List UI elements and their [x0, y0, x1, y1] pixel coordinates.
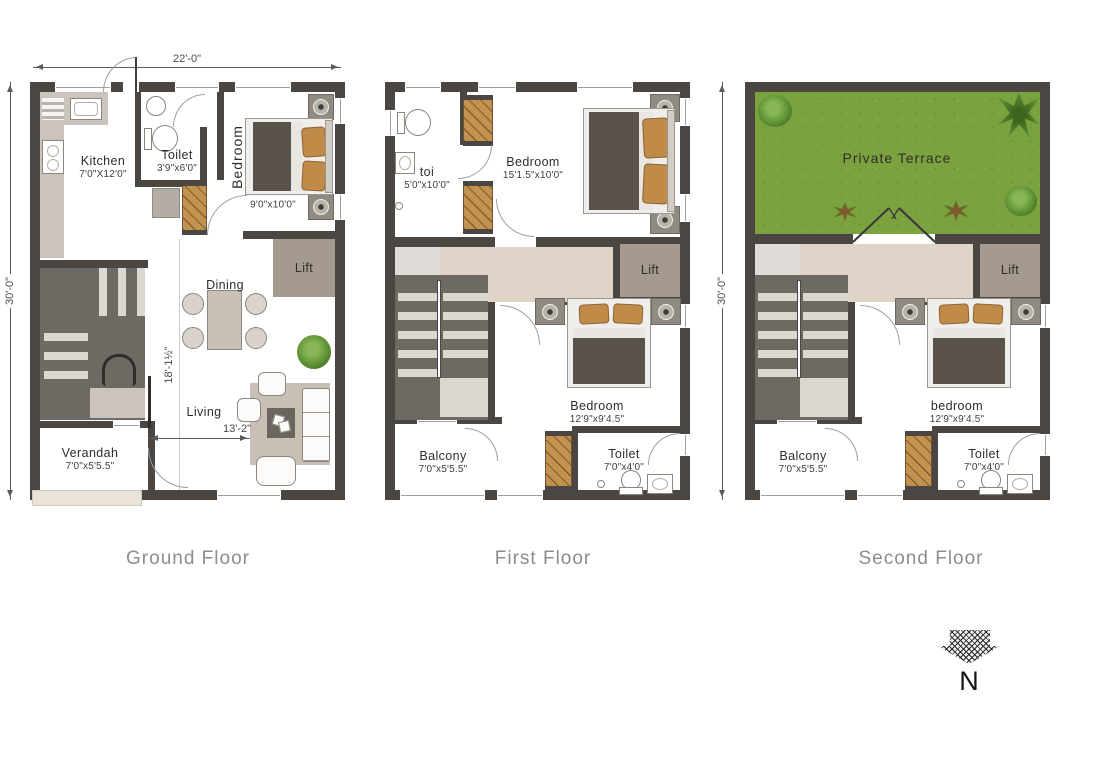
outer-wall-left [30, 82, 40, 500]
balcony-label: Balcony 7'0"x5'5.5" [419, 449, 468, 475]
basin-icon [1007, 474, 1033, 494]
dining-label: Dining [206, 278, 244, 292]
wc-bowl-icon [405, 109, 431, 136]
entry-door-leaf [135, 57, 137, 92]
bed-duvet [573, 338, 645, 384]
bed-sheet [573, 328, 645, 338]
window [478, 82, 516, 92]
bedroom-label: Bedroom [229, 125, 245, 189]
pillow-icon [301, 126, 327, 158]
lamp-icon [313, 199, 329, 215]
armchair-icon [258, 372, 286, 396]
bedroom-label: bedroom 12'9"x9'4.5" [930, 399, 984, 425]
headboard [667, 110, 675, 212]
wardrobe-icon [463, 99, 493, 142]
lift-label: Lift [641, 263, 659, 277]
stair-landing [440, 378, 488, 417]
outer-wall-right [335, 82, 345, 500]
dining-table-icon [207, 290, 242, 350]
bed-duvet [933, 338, 1005, 384]
balcony-railing [760, 490, 845, 500]
stair-treads [758, 282, 798, 377]
window [577, 82, 633, 92]
pillow-icon [642, 163, 670, 204]
second-floor-plan: Private Terrace Lift [745, 82, 1050, 500]
terrace-wall [755, 234, 853, 244]
terrace-label: Private Terrace [843, 150, 952, 166]
stair-railing [437, 280, 441, 378]
wc-tank-icon [144, 128, 152, 150]
toilet-wall-right [200, 127, 207, 187]
desk-chair-icon [102, 354, 136, 386]
toi-door-arc [458, 145, 492, 179]
bedroom2-label: Bedroom 12'9"x9'4.5" [570, 399, 624, 425]
terrace-double-door-icon [845, 198, 943, 244]
living-label: Living [186, 405, 221, 419]
outer-wall-left [745, 82, 755, 500]
wardrobe-icon [463, 185, 493, 230]
window [680, 194, 690, 222]
kitchen-label: Kitchen 7'0"X12'0" [79, 154, 126, 180]
wardrobe-icon [545, 435, 572, 487]
plant-icon [758, 95, 792, 127]
nightstand [895, 298, 925, 325]
ground-floor-title: Ground Floor [126, 548, 250, 570]
toi-label: toi 5'0"x10'0" [404, 165, 450, 191]
pillow-icon [972, 303, 1003, 325]
window [217, 490, 281, 500]
bedroom-door-arc [207, 195, 247, 235]
stair-treads [803, 282, 848, 363]
north-label: N [959, 666, 979, 697]
pillow-icon [938, 303, 969, 325]
lamp-icon [902, 304, 918, 320]
pillow-icon [578, 303, 609, 325]
dimension-height-second: 30'-0" [716, 274, 728, 308]
lamp-icon [313, 99, 329, 115]
lift-label: Lift [1001, 263, 1019, 277]
window [857, 490, 903, 500]
balcony-door-arc [825, 428, 858, 461]
verandah-label: Verandah 7'0"x5'5.5" [62, 446, 119, 472]
dimension-inner-vertical: 18'-1½" [163, 343, 175, 386]
coffee-table-icon [267, 408, 295, 438]
window [1040, 434, 1050, 456]
lift-label: Lift [295, 261, 313, 275]
toilet-wall-left [572, 426, 578, 497]
lamp-icon [658, 304, 674, 320]
nightstand [651, 298, 681, 325]
dining-chair-icon [182, 327, 204, 349]
window [680, 434, 690, 456]
window [405, 82, 441, 92]
bedroom1-label: Bedroom 15'1.5"x10'0" [503, 155, 563, 181]
toilet-wall-top [932, 426, 1040, 433]
outer-wall-left [385, 82, 395, 500]
dining-chair-icon [245, 327, 267, 349]
bedroom-wall-left [217, 92, 224, 180]
desk [90, 388, 145, 418]
entry-step [32, 490, 142, 506]
armchair-icon [237, 398, 261, 422]
bedroom-size-label: 9'0"x10'0" [250, 200, 296, 211]
bedroom-door-arc [860, 305, 900, 345]
bed-duvet [589, 112, 639, 210]
dimension-height-ground: 30'-0" [4, 274, 16, 308]
toilet-wall-left [932, 426, 938, 497]
toilet-door-arc [1008, 433, 1040, 465]
balcony-door-arc [465, 428, 498, 461]
wc-tank-icon [979, 487, 1003, 495]
wc-tank-icon [397, 112, 405, 134]
drain-icon [395, 202, 403, 210]
dimension-width-ground: 22'-0" [170, 53, 204, 65]
console [148, 376, 151, 428]
first-floor-title: First Floor [495, 548, 592, 570]
dimension-line-width-ground [33, 67, 341, 68]
nightstand [535, 298, 565, 325]
bedroom-wall-bottom [243, 231, 335, 239]
lift-wall-left [613, 237, 620, 304]
stair-treads [44, 322, 88, 384]
drain-icon [597, 480, 605, 488]
bedroom1-door-arc [496, 199, 534, 237]
dining-chair-icon [245, 293, 267, 315]
drain-icon [957, 480, 965, 488]
dish-rack-icon [42, 98, 64, 120]
terrace-wall [935, 234, 1040, 244]
stair-treads [398, 282, 438, 377]
basin-icon [647, 474, 673, 494]
wardrobe-icon [182, 185, 207, 231]
toilet-wall-left [135, 92, 141, 187]
north-arrow-icon [938, 630, 1000, 664]
plant-icon [297, 335, 331, 369]
pillow-icon [642, 117, 670, 158]
sofa-icon [302, 388, 330, 462]
toilet-label: Toilet 3'9"x6'0" [157, 148, 197, 174]
wardrobe-icon [905, 435, 932, 487]
window [113, 421, 140, 428]
nightstand [308, 94, 334, 120]
basin-icon [146, 96, 166, 116]
first-floor-plan: toi 5'0"x10'0" Bedroom 15'1.5"x10'0" Lif… [385, 82, 690, 500]
pillow-icon [301, 160, 327, 191]
second-floor-title: Second Floor [858, 548, 983, 570]
entry-door-arc [103, 57, 137, 92]
pillow-icon [612, 303, 643, 325]
toilet-door-arc [648, 433, 680, 465]
stair-treads [88, 268, 145, 316]
dimension-line-inner [148, 438, 250, 439]
kitchen-sink-icon [70, 98, 102, 120]
window [680, 98, 690, 126]
dimension-inner-horizontal: 13'-2" [220, 423, 254, 435]
window [385, 110, 395, 136]
ottoman-icon [256, 456, 296, 486]
stair-railing [797, 280, 801, 378]
lamp-icon [542, 304, 558, 320]
window [497, 490, 543, 500]
window [175, 82, 219, 92]
bedroom2-door-arc [500, 305, 540, 345]
nightstand [308, 194, 334, 220]
stair-treads [443, 282, 488, 363]
floor-plan-sheet: 22'-0" 30'-0" 30'-0" [0, 0, 1099, 759]
window [1040, 304, 1050, 328]
balcony-label: Balcony 7'0"x5'5.5" [779, 449, 828, 475]
toilet-wall-top [572, 426, 680, 433]
lift-wall-left [973, 234, 980, 304]
window [335, 98, 345, 124]
storage-unit [152, 188, 180, 218]
window [335, 194, 345, 220]
stair-wall-top [40, 260, 148, 268]
toilet-door-arc [173, 94, 205, 127]
ground-floor-plan: Kitchen 7'0"X12'0" Toilet 3'9"x6'0" Bedr… [30, 82, 345, 500]
nightstand [1011, 298, 1041, 325]
dining-chair-icon [182, 293, 204, 315]
headboard [325, 120, 333, 193]
balcony-railing [400, 490, 485, 500]
plant-icon [1005, 186, 1037, 216]
lamp-icon [1018, 304, 1034, 320]
window [235, 82, 291, 92]
toilet-label: Toilet 7'0"x4'0" [604, 447, 644, 473]
toilet-label: Toilet 7'0"x4'0" [964, 447, 1004, 473]
stove-icon [42, 140, 64, 174]
outer-wall-top [745, 82, 1050, 92]
bed-sheet [933, 328, 1005, 338]
wc-tank-icon [619, 487, 643, 495]
window [680, 304, 690, 328]
stair-landing [800, 378, 848, 417]
lamp-icon [657, 212, 673, 228]
bed-duvet [253, 122, 291, 191]
rooms-wall-bottom [395, 237, 495, 247]
